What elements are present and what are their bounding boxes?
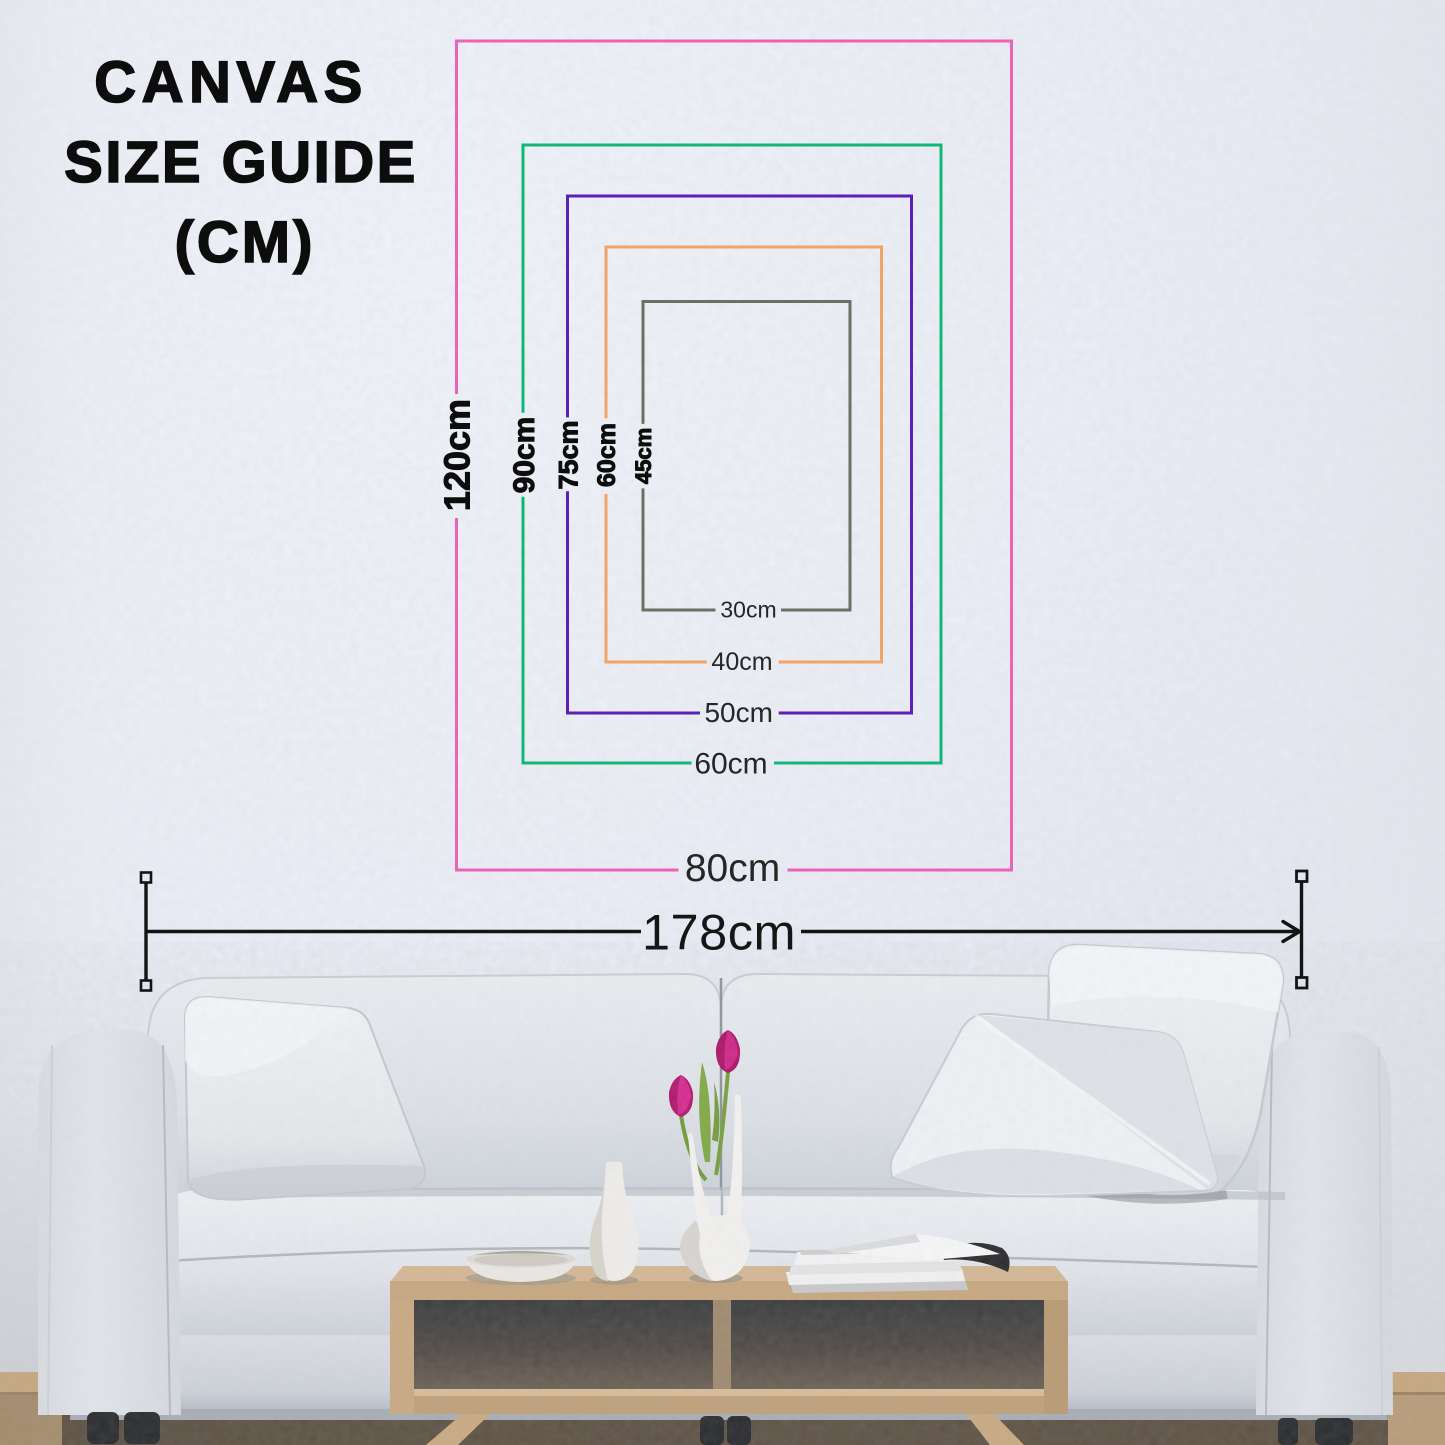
svg-text:CANVAS: CANVAS (94, 50, 368, 115)
svg-text:90cm: 90cm (508, 417, 541, 494)
svg-text:60cm: 60cm (694, 748, 767, 781)
svg-text:30cm: 30cm (720, 597, 776, 623)
svg-text:120cm: 120cm (437, 399, 478, 511)
svg-text:45cm: 45cm (631, 428, 656, 484)
svg-text:SIZE GUIDE: SIZE GUIDE (64, 130, 418, 195)
svg-text:(CM): (CM) (175, 210, 316, 275)
svg-text:75cm: 75cm (554, 420, 584, 489)
svg-text:40cm: 40cm (711, 648, 772, 676)
svg-text:50cm: 50cm (704, 697, 772, 728)
svg-text:60cm: 60cm (593, 423, 621, 487)
svg-text:80cm: 80cm (685, 847, 780, 890)
svg-text:178cm: 178cm (642, 904, 796, 961)
